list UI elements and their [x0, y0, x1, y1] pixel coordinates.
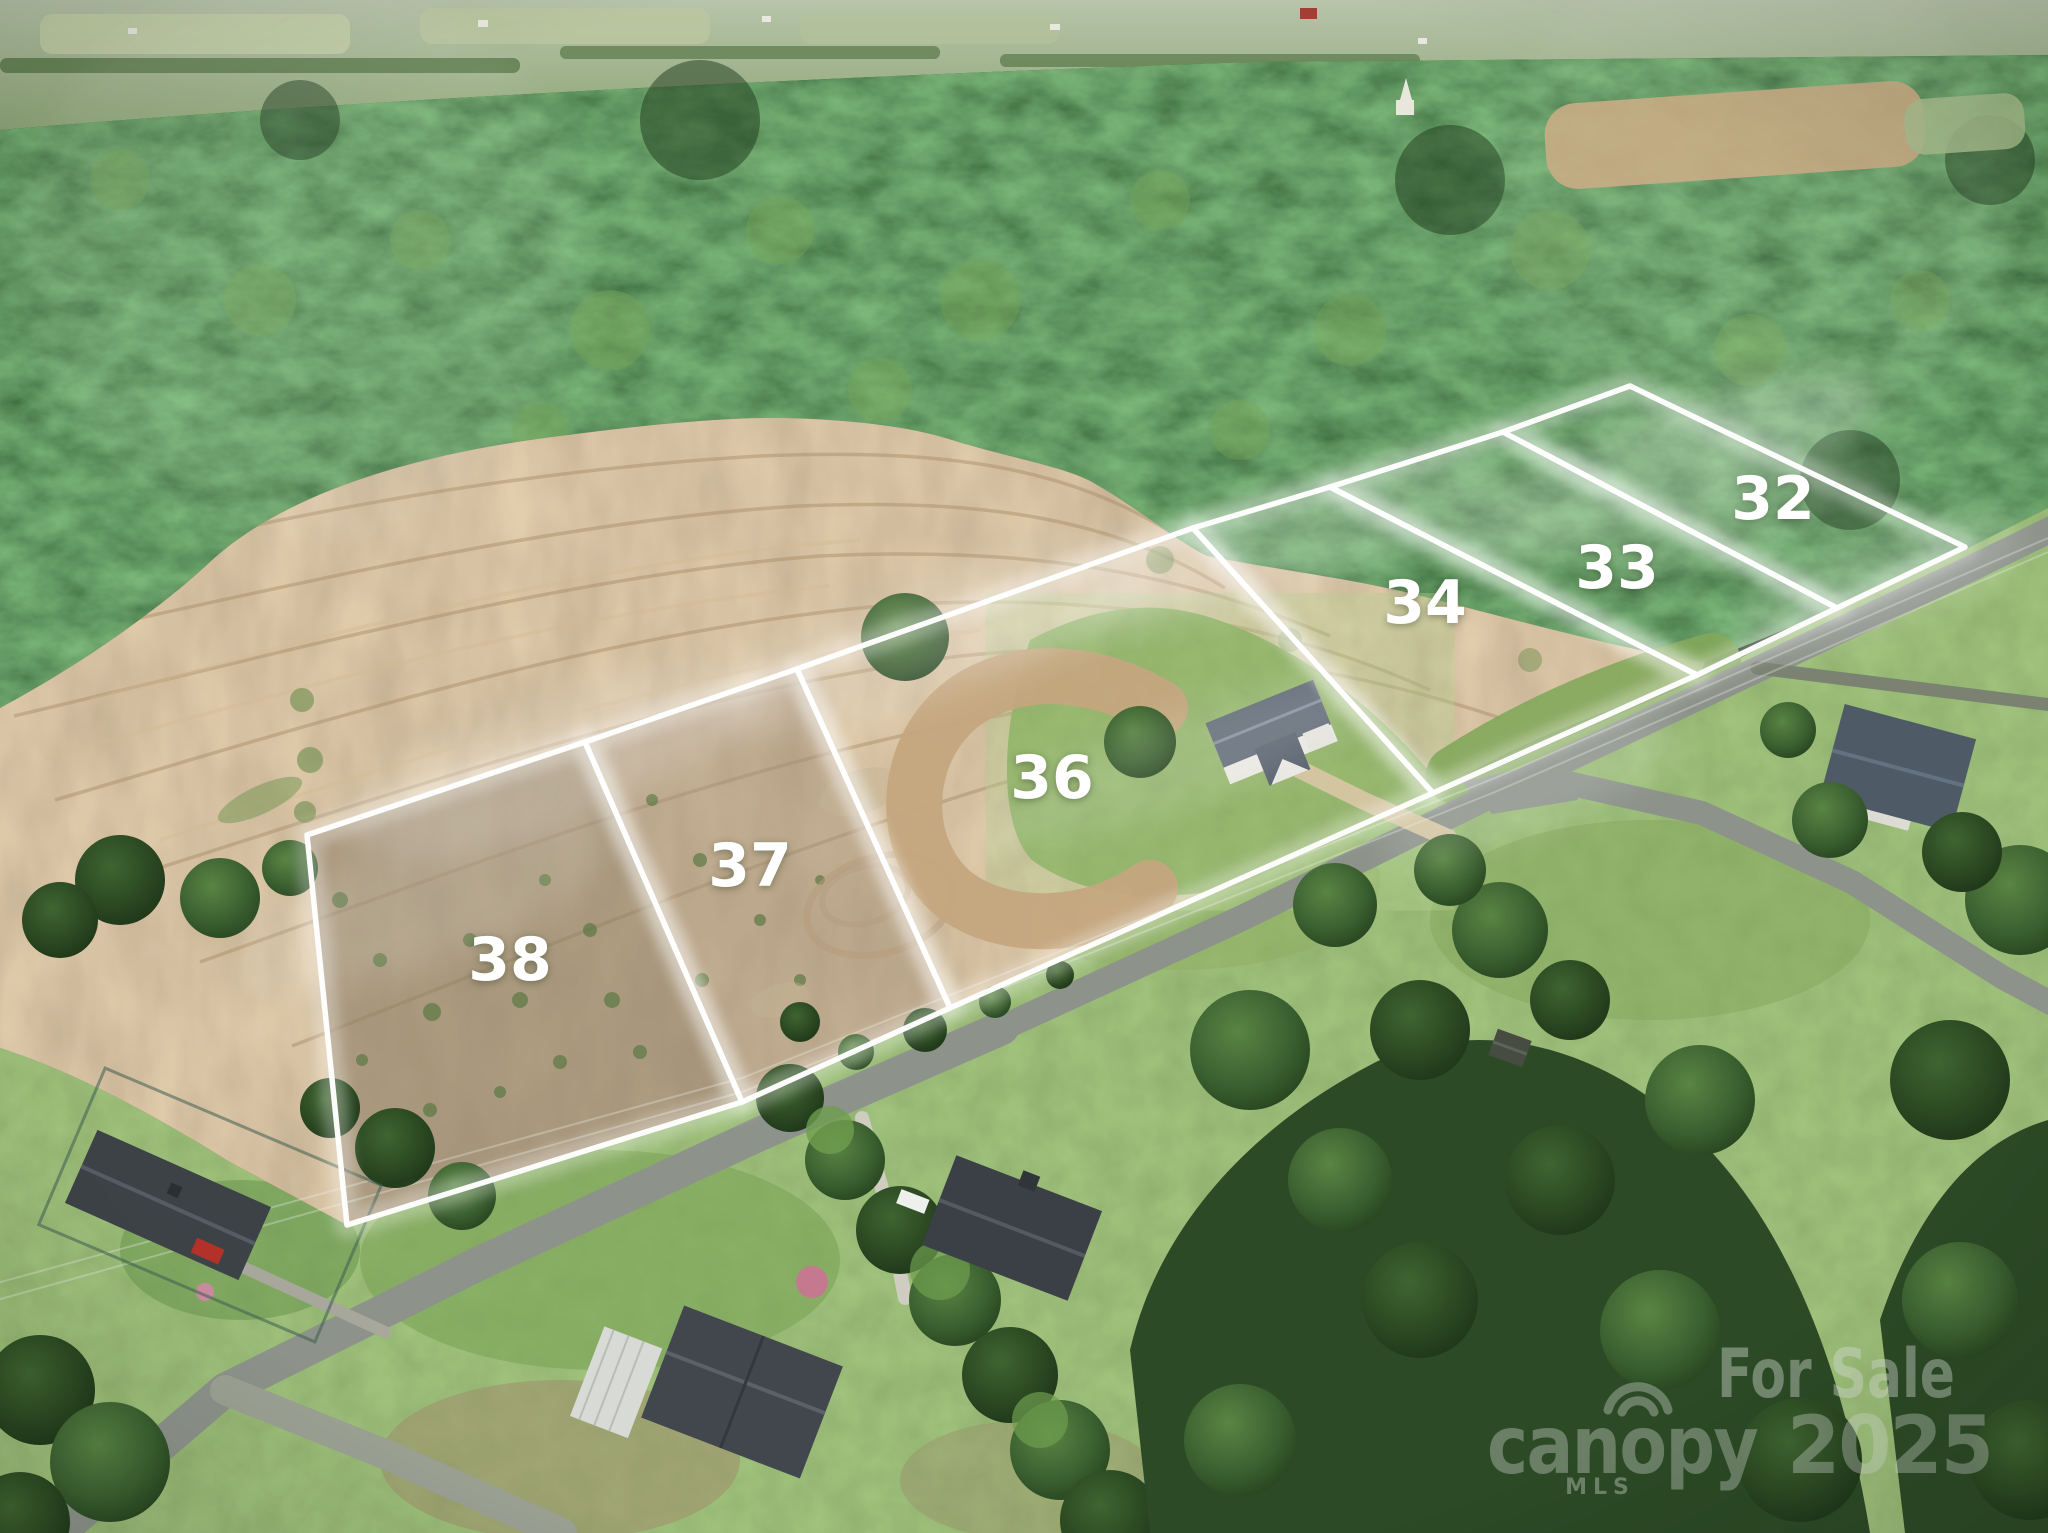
- screenshot-root: 383736343332 For Sale canopy 2025 MLS: [0, 0, 2048, 1533]
- vignette: [0, 0, 2048, 1533]
- aerial-photo: 383736343332 For Sale canopy 2025 MLS: [0, 0, 2048, 1533]
